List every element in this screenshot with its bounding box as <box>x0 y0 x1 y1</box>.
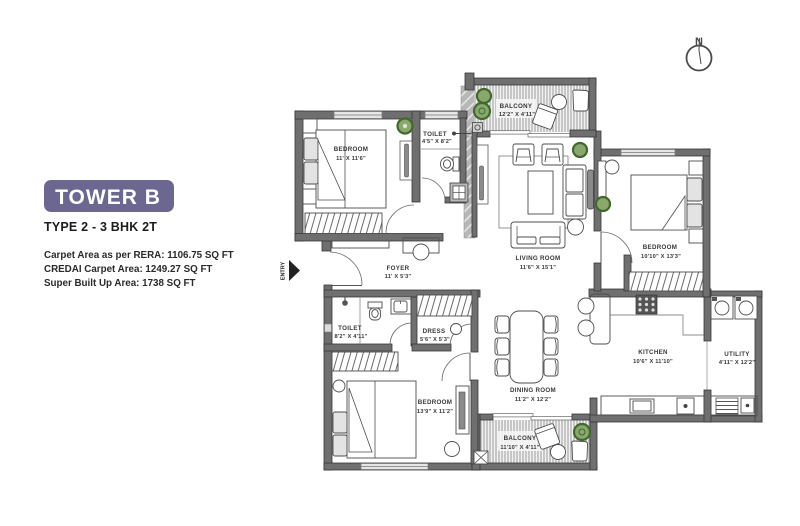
svg-text:Carpet Area as per RERA: 1106.: Carpet Area as per RERA: 1106.75 SQ FT <box>44 250 234 261</box>
svg-text:BEDROOM: BEDROOM <box>643 244 677 251</box>
svg-text:8'2" X 4'11": 8'2" X 4'11" <box>335 334 368 340</box>
svg-text:11'10" X 4'11": 11'10" X 4'11" <box>500 445 539 451</box>
svg-text:BEDROOM: BEDROOM <box>334 146 368 153</box>
svg-text:DRESS: DRESS <box>423 328 446 335</box>
svg-text:TOILET: TOILET <box>338 325 362 332</box>
svg-text:11' X 11'6": 11' X 11'6" <box>336 156 366 162</box>
svg-text:11'6" X 15'1": 11'6" X 15'1" <box>520 265 556 271</box>
svg-text:11' X 5'3": 11' X 5'3" <box>385 274 412 280</box>
svg-text:Super Built Up Area: 1738 SQ F: Super Built Up Area: 1738 SQ FT <box>44 278 196 289</box>
svg-text:10'10" X 13'3": 10'10" X 13'3" <box>641 254 681 260</box>
svg-text:KITCHEN: KITCHEN <box>638 349 668 356</box>
svg-text:TYPE 2 - 3 BHK 2T: TYPE 2 - 3 BHK 2T <box>44 220 157 234</box>
svg-text:CREDAI Carpet Area: 1249.27 SQ: CREDAI Carpet Area: 1249.27 SQ FT <box>44 264 212 275</box>
svg-text:10'6" X 11'10": 10'6" X 11'10" <box>633 359 673 365</box>
svg-text:DINING ROOM: DINING ROOM <box>510 387 556 394</box>
svg-text:5'6" X 5'3": 5'6" X 5'3" <box>420 337 450 343</box>
svg-text:BALCONY: BALCONY <box>504 435 537 442</box>
svg-text:LIVING ROOM: LIVING ROOM <box>516 255 561 262</box>
svg-text:ENTRY: ENTRY <box>281 261 287 280</box>
svg-text:13'9" X 11'2": 13'9" X 11'2" <box>417 409 453 415</box>
svg-text:TOWER B: TOWER B <box>55 186 161 209</box>
svg-text:BEDROOM: BEDROOM <box>418 399 452 406</box>
svg-text:TOILET: TOILET <box>423 131 447 138</box>
svg-text:4'5" X 8'2": 4'5" X 8'2" <box>422 139 452 145</box>
svg-text:4'11" X 12'2": 4'11" X 12'2" <box>719 360 755 366</box>
svg-text:11'2" X 12'2": 11'2" X 12'2" <box>515 397 551 403</box>
svg-text:BALCONY: BALCONY <box>500 103 533 110</box>
svg-text:12'2" X 4'11": 12'2" X 4'11" <box>499 112 535 118</box>
svg-text:FOYER: FOYER <box>387 265 410 272</box>
svg-text:UTILITY: UTILITY <box>724 351 750 358</box>
